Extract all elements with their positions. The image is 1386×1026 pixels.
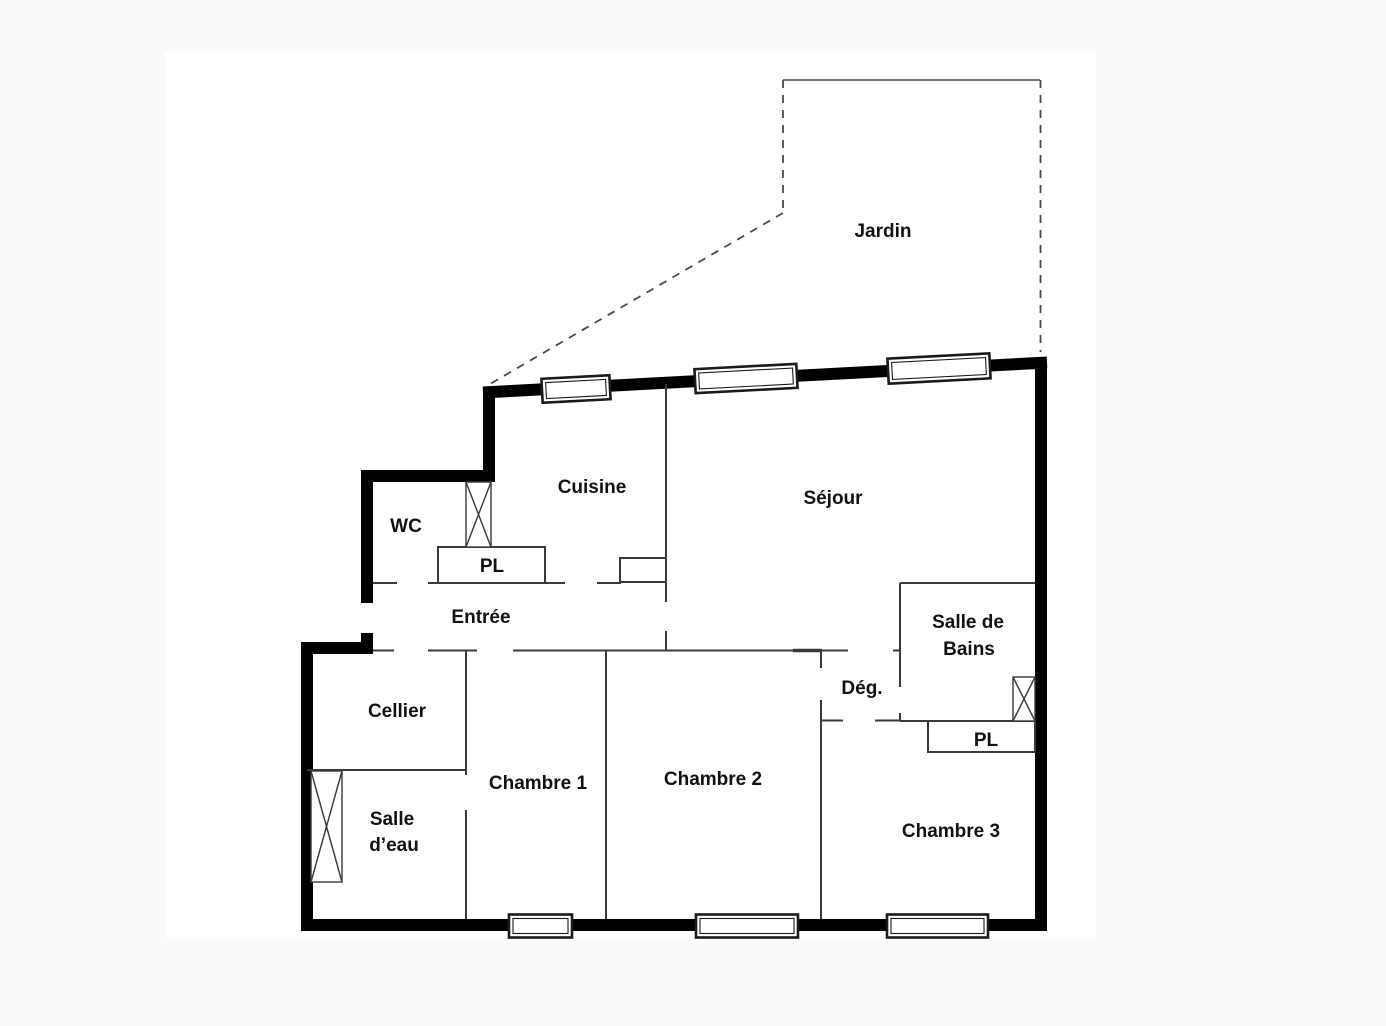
window-bottom-1 bbox=[509, 915, 572, 938]
room-label-salle-eau-line2: d’eau bbox=[369, 835, 419, 856]
floor-plan: Jardin Cuisine Séjour WC PL Entrée Salle… bbox=[0, 0, 1386, 1026]
room-label-sejour: Séjour bbox=[803, 488, 863, 509]
room-label-cellier: Cellier bbox=[368, 701, 427, 722]
room-label-degagement: Dég. bbox=[841, 678, 882, 699]
window-bottom-2 bbox=[696, 915, 798, 938]
room-label-cuisine: Cuisine bbox=[558, 477, 627, 498]
room-label-chambre3-placard: PL bbox=[974, 730, 999, 751]
room-label-chambre-2: Chambre 2 bbox=[664, 769, 762, 790]
room-label-salle-de-bains-line1: Salle de bbox=[932, 612, 1004, 633]
room-label-jardin: Jardin bbox=[854, 221, 911, 242]
wc-shaft-column-icon bbox=[466, 482, 491, 547]
room-label-entree-placard: PL bbox=[480, 556, 505, 577]
window-bottom-3 bbox=[887, 915, 988, 938]
room-label-entree: Entrée bbox=[451, 607, 510, 628]
room-label-wc: WC bbox=[390, 516, 422, 537]
room-label-salle-eau-line1: Salle bbox=[370, 809, 414, 830]
salle-de-bains-shaft-column-icon bbox=[1013, 677, 1035, 721]
salle-eau-shaft-column-icon bbox=[311, 771, 342, 882]
room-label-chambre-3: Chambre 3 bbox=[902, 821, 1000, 842]
window-top-2 bbox=[694, 364, 797, 393]
room-label-salle-de-bains-line2: Bains bbox=[943, 639, 995, 660]
window-top-1 bbox=[541, 375, 610, 403]
cuisine-counter-box bbox=[620, 558, 666, 582]
window-top-3 bbox=[887, 353, 990, 383]
floor-plan-page: Jardin Cuisine Séjour WC PL Entrée Salle… bbox=[0, 0, 1386, 1026]
room-label-chambre-1: Chambre 1 bbox=[489, 773, 588, 794]
